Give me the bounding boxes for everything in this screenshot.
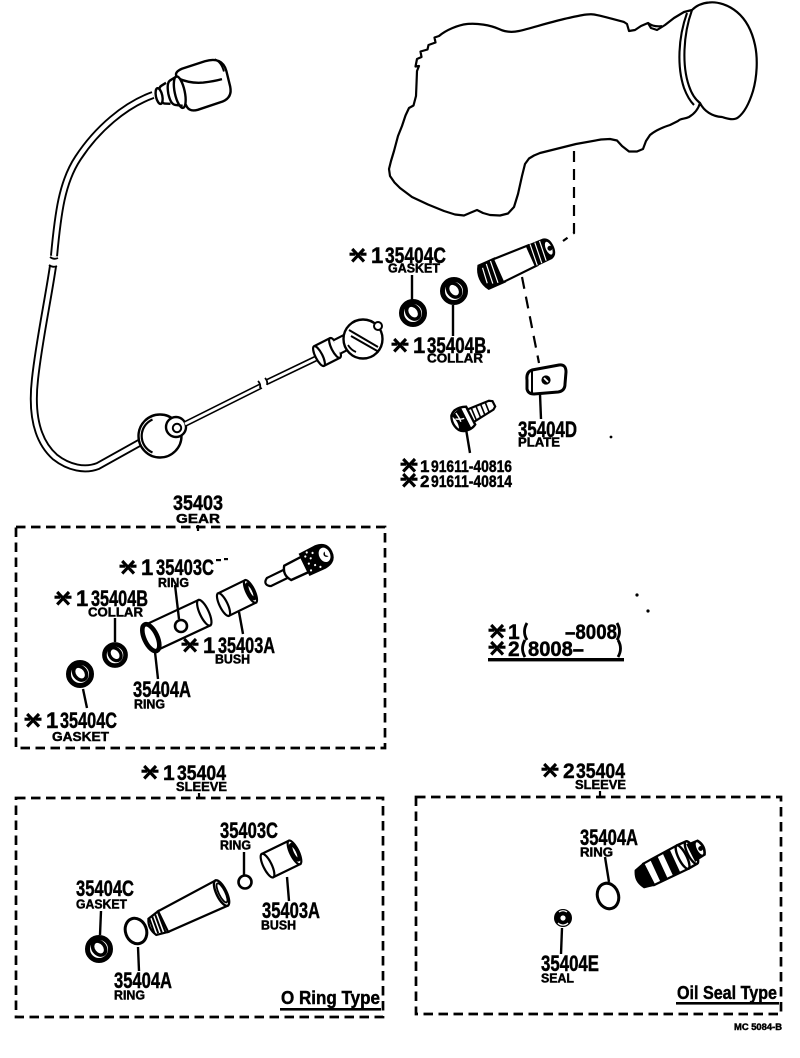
svg-text:2: 2	[508, 638, 520, 661]
svg-text:1: 1	[203, 633, 215, 658]
svg-text:SEAL: SEAL	[541, 972, 574, 986]
svg-text:RING: RING	[134, 698, 165, 712]
svg-text:GASKET: GASKET	[388, 262, 440, 276]
svg-text:RING: RING	[158, 576, 189, 590]
svg-text:2: 2	[420, 472, 429, 491]
svg-text:GASKET: GASKET	[52, 730, 109, 744]
svg-text:1: 1	[163, 762, 175, 785]
svg-text:1: 1	[141, 555, 153, 580]
svg-text:91611-40814: 91611-40814	[431, 472, 512, 491]
svg-text:1: 1	[413, 333, 425, 358]
svg-text:COLLAR: COLLAR	[88, 606, 143, 620]
svg-text:2: 2	[563, 760, 575, 783]
svg-text:PLATE: PLATE	[518, 436, 560, 450]
svg-text:BUSH: BUSH	[261, 919, 296, 933]
svg-text:8008–: 8008–	[528, 638, 584, 661]
svg-text:RING: RING	[220, 839, 251, 853]
svg-text:SLEEVE: SLEEVE	[575, 778, 626, 792]
svg-text:BUSH: BUSH	[215, 653, 250, 667]
svg-text:COLLAR: COLLAR	[427, 352, 483, 366]
svg-text:SLEEVE: SLEEVE	[176, 780, 227, 794]
svg-text:1: 1	[371, 243, 383, 268]
svg-text:GASKET: GASKET	[76, 898, 127, 912]
svg-text:RING: RING	[114, 989, 145, 1003]
svg-text:1: 1	[76, 586, 88, 611]
svg-text:MC 5084-B: MC 5084-B	[734, 1022, 782, 1033]
svg-text:RING: RING	[580, 846, 613, 860]
svg-text:O Ring Type: O Ring Type	[281, 988, 380, 1008]
svg-text:Oil Seal Type: Oil Seal Type	[677, 983, 777, 1003]
svg-text:GEAR: GEAR	[176, 512, 220, 526]
